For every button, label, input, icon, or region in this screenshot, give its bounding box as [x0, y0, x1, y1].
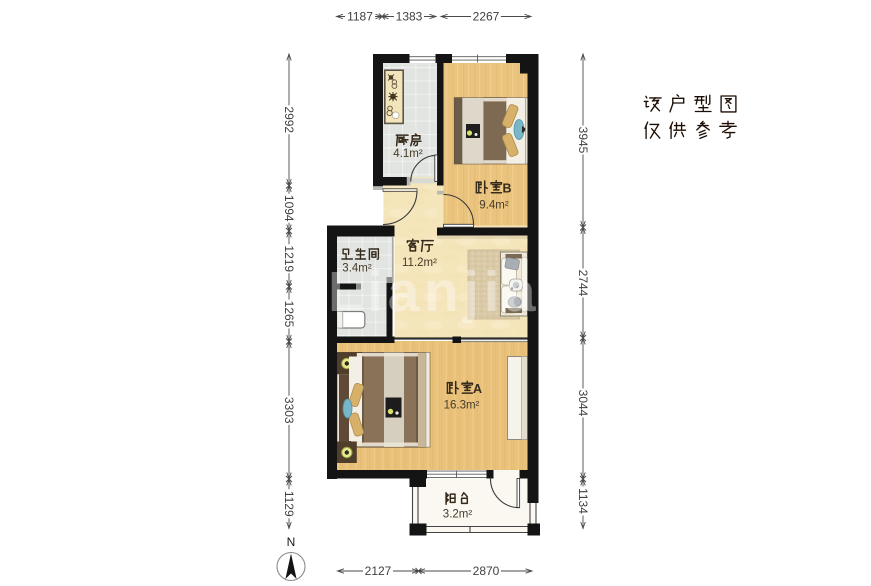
svg-text:4.1m²: 4.1m²: [393, 148, 423, 160]
svg-text:1094: 1094: [282, 195, 296, 222]
svg-text:2744: 2744: [576, 270, 590, 297]
svg-text:16.3m²: 16.3m²: [444, 400, 480, 412]
svg-text:9.4m²: 9.4m²: [479, 200, 509, 212]
svg-text:1219: 1219: [282, 245, 296, 272]
svg-text:3.4m²: 3.4m²: [342, 263, 372, 275]
svg-text:2267: 2267: [473, 10, 500, 24]
svg-text:N: N: [287, 535, 296, 549]
svg-text:2127: 2127: [365, 564, 392, 578]
svg-text:3945: 3945: [576, 127, 590, 154]
svg-text:11.2m²: 11.2m²: [402, 257, 437, 269]
svg-text:1129: 1129: [282, 491, 296, 517]
svg-text:B: B: [502, 182, 511, 196]
svg-text:1383: 1383: [396, 10, 423, 24]
svg-text:1265: 1265: [282, 301, 296, 328]
svg-text:1134: 1134: [576, 488, 590, 514]
svg-text:2870: 2870: [473, 564, 500, 578]
svg-text:A: A: [473, 382, 482, 396]
svg-text:2992: 2992: [282, 106, 296, 133]
svg-text:3303: 3303: [282, 397, 296, 424]
svg-text:3.2m²: 3.2m²: [443, 509, 473, 521]
svg-text:1187: 1187: [347, 10, 373, 24]
svg-text:3044: 3044: [576, 390, 590, 417]
